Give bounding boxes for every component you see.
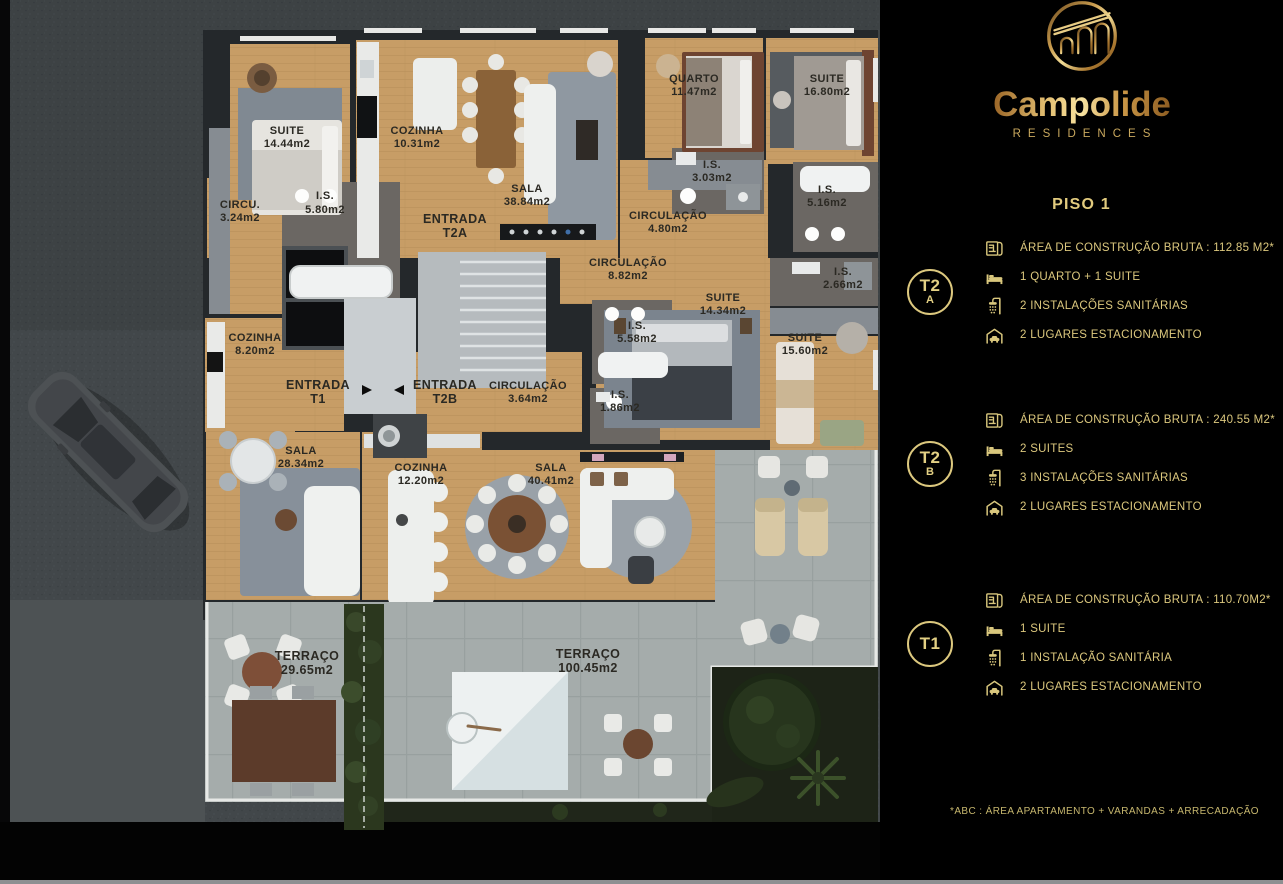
hedge <box>341 604 384 830</box>
room-label-terraco-2965: TERRAÇO29.65m2 <box>275 649 340 677</box>
svg-text:CIRCULAÇÃO: CIRCULAÇÃO <box>629 209 707 222</box>
aqueduct-logo-icon <box>1044 0 1120 74</box>
svg-text:2.66m2: 2.66m2 <box>823 279 863 291</box>
info-panel: Campolide RESIDENCES PISO 1 T2 A ÁREA DE… <box>880 0 1283 884</box>
spec-row-parking: 2 LUGARES ESTACIONAMENTO <box>984 325 1274 345</box>
unit-block-t2a: T2 A ÁREA DE CONSTRUÇÃO BRUTA : 112.85 M… <box>880 238 1283 345</box>
unit-badge-t2b: T2 B <box>907 441 953 487</box>
svg-text:CIRCU.: CIRCU. <box>220 199 260 211</box>
svg-text:TERRAÇO: TERRAÇO <box>275 649 340 663</box>
svg-text:SALA: SALA <box>511 183 543 195</box>
brand-subtitle: RESIDENCES <box>1006 128 1158 140</box>
svg-text:38.84m2: 38.84m2 <box>504 196 550 208</box>
room-label-cozinha-820: COZINHA8.20m2 <box>229 332 282 357</box>
spec-row-area: ÁREA DE CONSTRUÇÃO BRUTA : 112.85 M2* <box>984 238 1274 258</box>
bed-icon <box>984 267 1005 288</box>
spec-row-bathrooms: 3 INSTALAÇÕES SANITÁRIAS <box>984 468 1275 488</box>
svg-text:11.47m2: 11.47m2 <box>671 86 717 98</box>
floorplan-render: SUITE14.44m2 COZINHA10.31m2 SALA38.84m2 … <box>0 0 880 884</box>
spec-row-bedrooms: 1 QUARTO + 1 SUITE <box>984 267 1274 287</box>
svg-text:I.S.: I.S. <box>628 320 646 332</box>
svg-text:TERRAÇO: TERRAÇO <box>556 647 621 661</box>
svg-text:SALA: SALA <box>285 445 317 457</box>
spec-list-t2a: ÁREA DE CONSTRUÇÃO BRUTA : 112.85 M2* 1 … <box>984 238 1274 345</box>
svg-text:12.20m2: 12.20m2 <box>398 475 444 487</box>
svg-text:5.16m2: 5.16m2 <box>807 197 847 209</box>
room-label-cozinha-1220: COZINHA12.20m2 <box>395 462 448 487</box>
spec-row-bathrooms: 1 INSTALAÇÃO SANITÁRIA <box>984 648 1271 668</box>
svg-text:ENTRADA: ENTRADA <box>413 378 477 392</box>
svg-text:8.20m2: 8.20m2 <box>235 345 275 357</box>
brand-logo-block: Campolide RESIDENCES <box>880 0 1283 140</box>
svg-text:SUITE: SUITE <box>810 73 844 85</box>
svg-text:10.31m2: 10.31m2 <box>394 138 440 150</box>
spec-row-parking: 2 LUGARES ESTACIONAMENTO <box>984 497 1275 517</box>
unit-badge-t2a: T2 A <box>907 269 953 315</box>
campolide-floorplan-page: SUITE14.44m2 COZINHA10.31m2 SALA38.84m2 … <box>0 0 1283 884</box>
svg-text:100.45m2: 100.45m2 <box>558 661 618 675</box>
shower-icon <box>984 468 1005 489</box>
svg-text:CIRCULAÇÃO: CIRCULAÇÃO <box>489 379 567 392</box>
svg-text:QUARTO: QUARTO <box>669 73 719 85</box>
unit-block-t1: T1 ÁREA DE CONSTRUÇÃO BRUTA : 110.70M2* … <box>880 590 1283 697</box>
svg-text:5.58m2: 5.58m2 <box>617 333 657 345</box>
room-label-cozinha-1031: COZINHA10.31m2 <box>391 125 444 150</box>
svg-text:1.86m2: 1.86m2 <box>600 402 640 414</box>
svg-text:I.S.: I.S. <box>316 190 334 202</box>
bed-icon <box>984 619 1005 640</box>
doormat-t2a <box>500 224 596 240</box>
svg-text:28.34m2: 28.34m2 <box>278 458 324 470</box>
room-label-circu-324: CIRCU.3.24m2 <box>220 199 260 224</box>
room-label-terraco-10045: TERRAÇO100.45m2 <box>556 647 621 675</box>
svg-text:14.44m2: 14.44m2 <box>264 138 310 150</box>
room-label-suite-1560: SUITE15.60m2 <box>782 332 828 357</box>
svg-text:40.41m2: 40.41m2 <box>528 475 574 487</box>
svg-text:8.82m2: 8.82m2 <box>608 270 648 282</box>
svg-text:COZINHA: COZINHA <box>395 462 448 474</box>
brand-wordmark: Campolide <box>963 82 1201 126</box>
shower-icon <box>984 648 1005 669</box>
garage-icon <box>984 677 1005 698</box>
svg-text:3.03m2: 3.03m2 <box>692 172 732 184</box>
spec-row-bathrooms: 2 INSTALAÇÕES SANITÁRIAS <box>984 296 1274 316</box>
entry-lobby <box>344 298 416 414</box>
spec-list-t2b: ÁREA DE CONSTRUÇÃO BRUTA : 240.55 M2* 2 … <box>984 410 1275 517</box>
svg-text:3.64m2: 3.64m2 <box>508 393 548 405</box>
spec-row-area: ÁREA DE CONSTRUÇÃO BRUTA : 240.55 M2* <box>984 410 1275 430</box>
garage-icon <box>984 325 1005 346</box>
unit-badge-t1: T1 <box>907 621 953 667</box>
pavilion <box>447 672 568 790</box>
svg-text:SUITE: SUITE <box>788 332 822 344</box>
svg-text:T2A: T2A <box>443 226 468 240</box>
svg-text:CIRCULAÇÃO: CIRCULAÇÃO <box>589 256 667 269</box>
room-label-suite-1434: SUITE14.34m2 <box>700 292 746 317</box>
svg-text:14.34m2: 14.34m2 <box>700 305 746 317</box>
svg-text:T2B: T2B <box>433 392 458 406</box>
bed-icon <box>984 439 1005 460</box>
svg-text:I.S.: I.S. <box>703 159 721 171</box>
svg-text:SUITE: SUITE <box>706 292 740 304</box>
unit-block-t2b: T2 B ÁREA DE CONSTRUÇÃO BRUTA : 240.55 M… <box>880 410 1283 517</box>
spec-row-parking: 2 LUGARES ESTACIONAMENTO <box>984 677 1271 697</box>
svg-text:I.S.: I.S. <box>611 389 629 401</box>
svg-text:T1: T1 <box>310 392 325 406</box>
bottom-border-strip <box>0 880 1283 884</box>
spec-row-area: ÁREA DE CONSTRUÇÃO BRUTA : 110.70M2* <box>984 590 1271 610</box>
svg-text:ENTRADA: ENTRADA <box>286 378 350 392</box>
room-label-quarto-1147: QUARTO11.47m2 <box>669 73 719 98</box>
svg-text:3.24m2: 3.24m2 <box>220 212 260 224</box>
room-label-suite-1444: SUITE14.44m2 <box>264 125 310 150</box>
abc-footnote: *ABC : ÁREA APARTAMENTO + VARANDAS + ARR… <box>880 806 1283 817</box>
shower-icon <box>984 296 1005 317</box>
svg-text:29.65m2: 29.65m2 <box>281 663 333 677</box>
floor-title: PISO 1 <box>880 196 1283 214</box>
svg-text:Campolide: Campolide <box>993 86 1171 124</box>
blueprint-icon <box>984 590 1005 611</box>
svg-text:SUITE: SUITE <box>270 125 304 137</box>
garage-icon <box>984 497 1005 518</box>
blueprint-icon <box>984 410 1005 431</box>
svg-text:15.60m2: 15.60m2 <box>782 345 828 357</box>
svg-text:I.S.: I.S. <box>818 184 836 196</box>
svg-text:I.S.: I.S. <box>834 266 852 278</box>
spec-row-bedrooms: 1 SUITE <box>984 619 1271 639</box>
svg-text:SALA: SALA <box>535 462 567 474</box>
svg-text:COZINHA: COZINHA <box>391 125 444 137</box>
spec-row-bedrooms: 2 SUITES <box>984 439 1275 459</box>
svg-text:4.80m2: 4.80m2 <box>648 223 688 235</box>
svg-text:5.80m2: 5.80m2 <box>305 204 345 216</box>
svg-text:16.80m2: 16.80m2 <box>804 86 850 98</box>
room-label-suite-1680: SUITE16.80m2 <box>804 73 850 98</box>
spec-list-t1: ÁREA DE CONSTRUÇÃO BRUTA : 110.70M2* 1 S… <box>984 590 1271 697</box>
blueprint-icon <box>984 238 1005 259</box>
svg-text:ENTRADA: ENTRADA <box>423 212 487 226</box>
svg-text:COZINHA: COZINHA <box>229 332 282 344</box>
